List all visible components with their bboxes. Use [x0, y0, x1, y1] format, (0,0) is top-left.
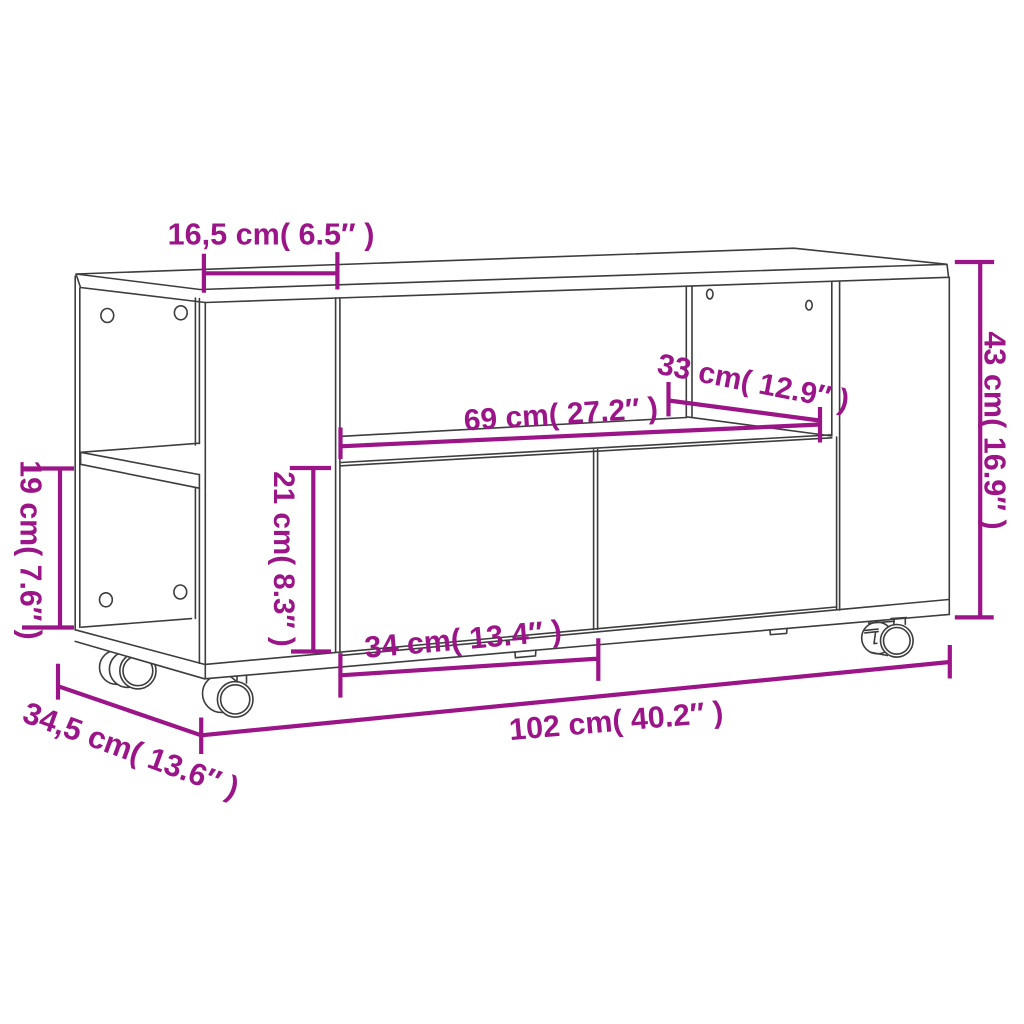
svg-text:21 cm( 8.3″ ): 21 cm( 8.3″ ) — [267, 471, 300, 646]
svg-text:43 cm( 16.9″ ): 43 cm( 16.9″ ) — [978, 331, 1012, 529]
svg-text:16,5 cm( 6.5″ ): 16,5 cm( 6.5″ ) — [168, 218, 375, 252]
svg-text:19 cm( 7.6″ ): 19 cm( 7.6″ ) — [14, 460, 47, 640]
